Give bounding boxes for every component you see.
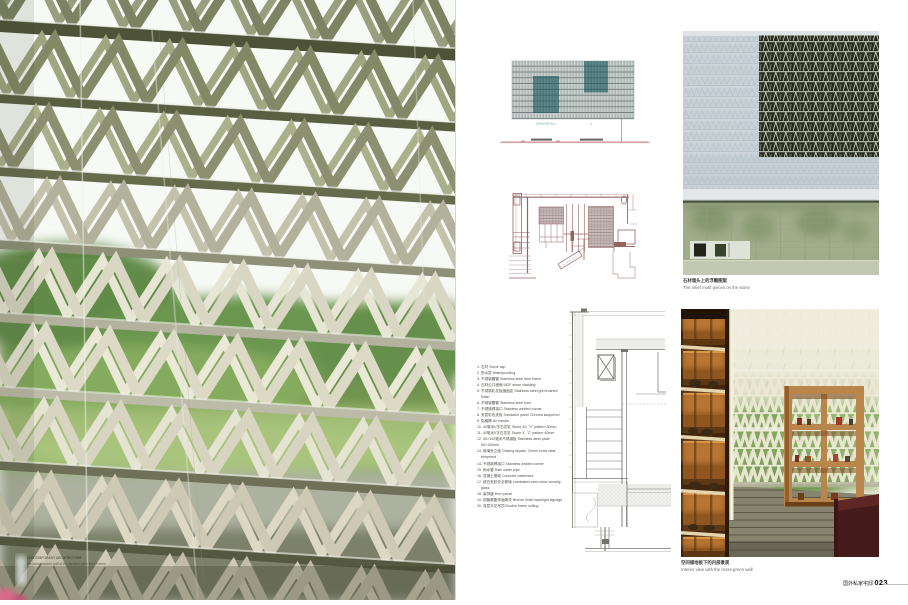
svg-text:a: a [590, 122, 592, 126]
svg-text:1200x300 bloc: 1200x300 bloc [536, 122, 556, 126]
svg-text:CONTEMPORARY ARCHITECTURE: CONTEMPORARY ARCHITECTURE [27, 556, 82, 560]
svg-text:the lattice screen wall of the: the lattice screen wall of the pavilion … [27, 562, 107, 566]
